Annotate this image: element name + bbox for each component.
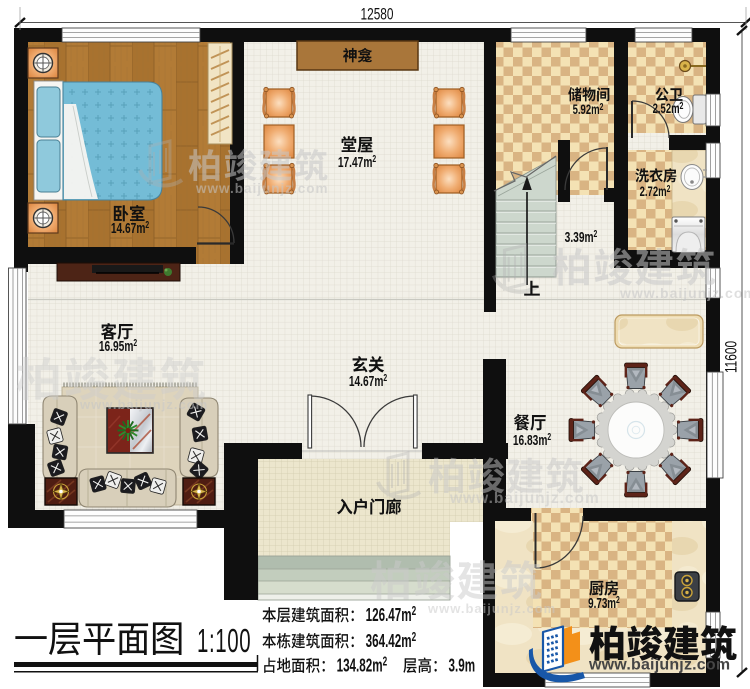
svg-text:2.72m2: 2.72m2 xyxy=(640,183,671,200)
svg-text:134.82m2: 134.82m2 xyxy=(337,655,388,677)
svg-text:5.92m2: 5.92m2 xyxy=(573,101,604,118)
svg-text:1:100: 1:100 xyxy=(197,622,251,659)
svg-text:www.baijunjz.com: www.baijunjz.com xyxy=(619,285,750,301)
svg-text:2.52m2: 2.52m2 xyxy=(653,100,684,117)
svg-text:14.67m2: 14.67m2 xyxy=(111,219,150,237)
svg-text:www.baijunjz.com: www.baijunjz.com xyxy=(427,601,556,616)
svg-text:3.9m: 3.9m xyxy=(449,656,476,676)
svg-text:12580: 12580 xyxy=(360,6,393,24)
svg-text:16.83m2: 16.83m2 xyxy=(513,431,552,449)
svg-text:17.47m2: 17.47m2 xyxy=(338,153,377,171)
svg-text:126.47m2: 126.47m2 xyxy=(366,604,417,626)
svg-text:14.67m2: 14.67m2 xyxy=(349,372,388,390)
svg-text:3.39m2: 3.39m2 xyxy=(565,228,598,246)
svg-text:9.73m2: 9.73m2 xyxy=(588,594,620,612)
svg-text:www.baijunjz.com: www.baijunjz.com xyxy=(588,657,730,674)
svg-text:364.42m2: 364.42m2 xyxy=(366,630,417,652)
svg-text:www.baijunjz.com: www.baijunjz.com xyxy=(195,181,329,196)
svg-text:16.95m2: 16.95m2 xyxy=(99,337,138,355)
svg-text:www.baijunjz.com: www.baijunjz.com xyxy=(79,397,208,412)
svg-text:11600: 11600 xyxy=(723,341,741,373)
svg-text:www.baijunjz.com: www.baijunjz.com xyxy=(449,490,600,507)
